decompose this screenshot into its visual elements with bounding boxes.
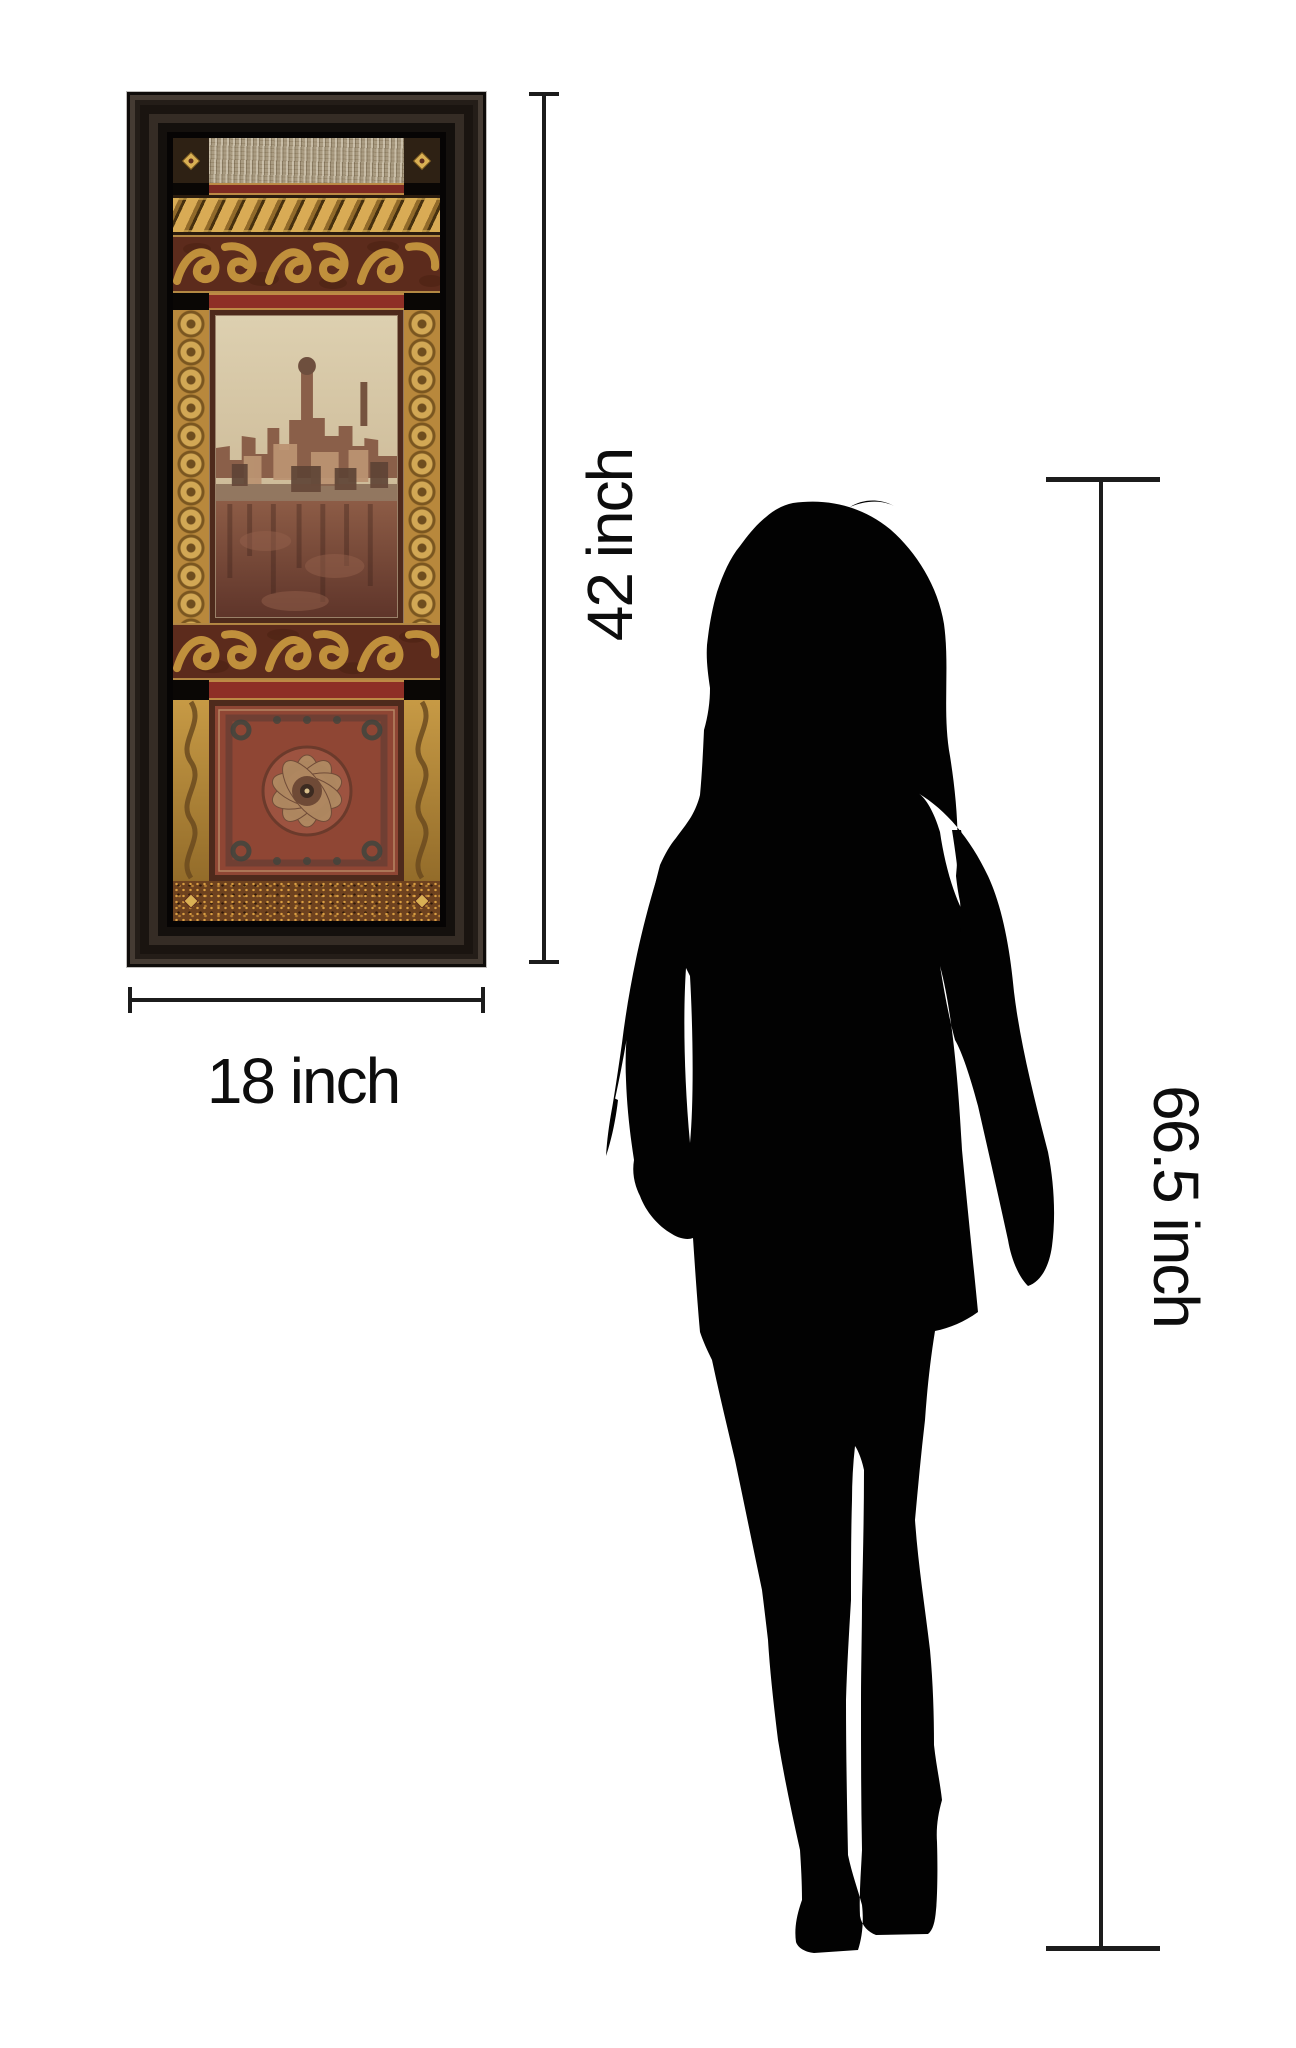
cityscape-painting — [216, 316, 397, 617]
woman-body-shape — [626, 502, 1054, 1953]
red-divider-bar — [173, 293, 440, 310]
artwork-width-tick-left — [128, 987, 132, 1013]
vine-border-column — [173, 700, 209, 881]
rosette-medallion-icon — [263, 747, 351, 835]
speckled-border-strip — [173, 881, 440, 921]
red-divider-bar — [173, 680, 440, 700]
corner-medallion-icon — [179, 889, 203, 913]
red-divider-bar — [173, 183, 440, 195]
rug-medallion-panel — [209, 700, 404, 881]
acanthus-frieze-band — [173, 235, 440, 293]
artwork-height-cap-bottom — [529, 960, 559, 964]
art-bottom-section — [173, 700, 440, 881]
vine-border-column — [404, 700, 440, 881]
artwork-print — [173, 138, 440, 921]
artwork-width-line — [128, 998, 485, 1002]
silver-texture-panel — [209, 138, 404, 183]
woman-silhouette — [600, 498, 1070, 1958]
acanthus-frieze-band — [173, 623, 440, 680]
framed-artwork — [127, 92, 486, 967]
person-height-cap-top — [1046, 477, 1160, 482]
artwork-height-line — [542, 94, 546, 962]
person-height-line — [1099, 481, 1103, 1949]
person-height-cap-bottom — [1046, 1946, 1160, 1951]
size-comparison-diagram: 42 inch 18 inch 66.5 inch — [0, 0, 1296, 2048]
artwork-width-label: 18 inch — [207, 1046, 399, 1116]
art-central-section — [173, 310, 440, 623]
corner-medallion-icon — [404, 138, 440, 183]
person-height-label: 66.5 inch — [1141, 1085, 1211, 1327]
gold-rope-band — [173, 195, 440, 235]
artwork-height-cap-top — [529, 92, 559, 96]
artwork-width-tick-right — [481, 987, 485, 1013]
art-top-band — [173, 138, 440, 183]
scallop-border-column — [173, 310, 209, 623]
scallop-border-column — [404, 310, 440, 623]
cityscape-panel — [209, 310, 404, 623]
corner-medallion-icon — [410, 889, 434, 913]
corner-medallion-icon — [173, 138, 209, 183]
